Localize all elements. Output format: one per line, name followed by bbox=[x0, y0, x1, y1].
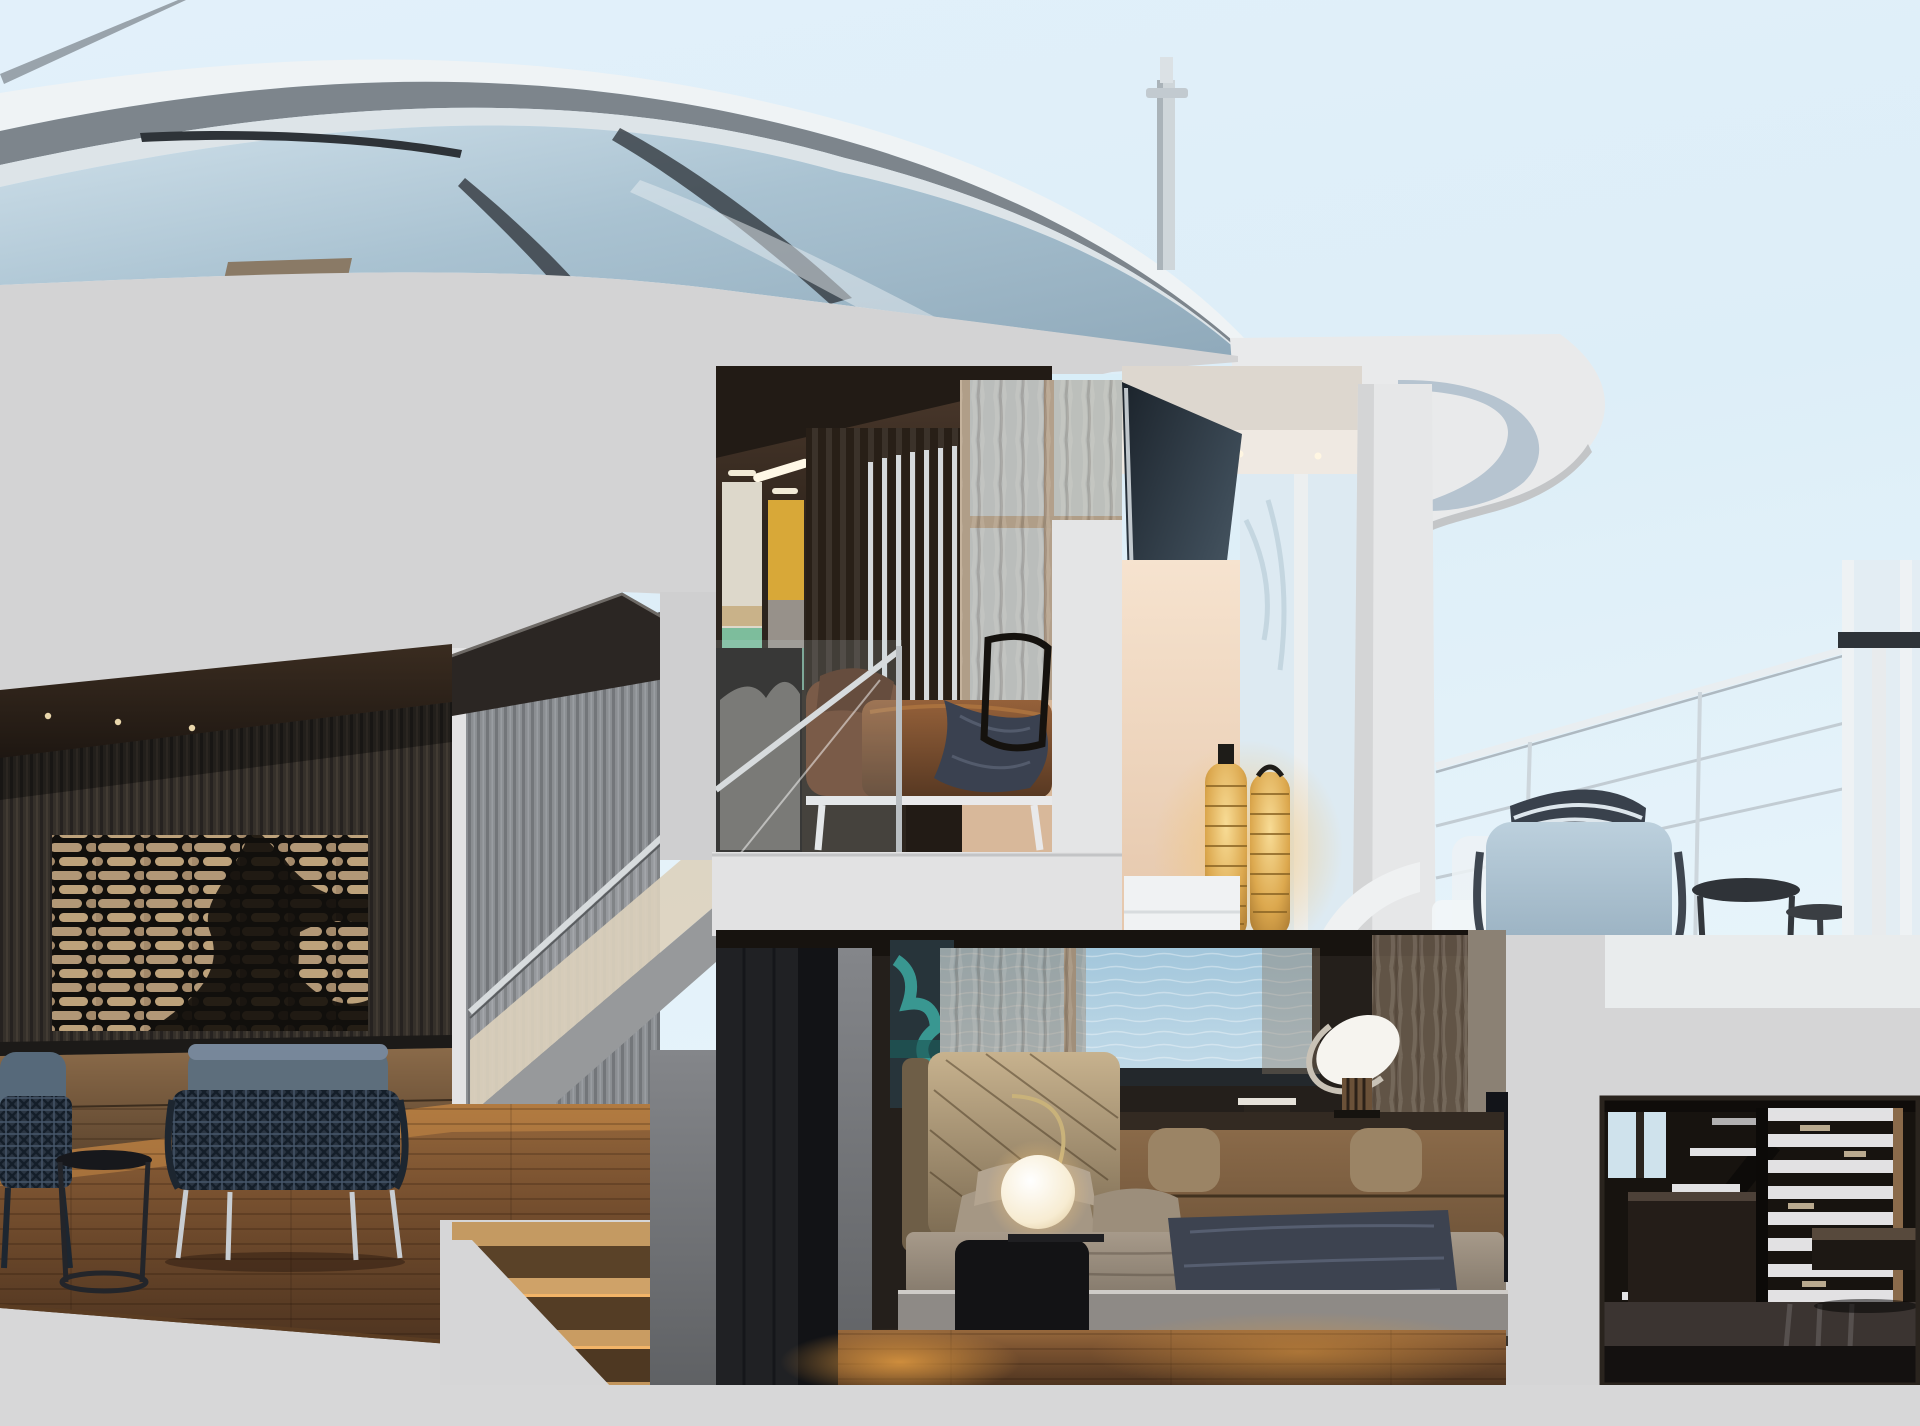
desk-books-1 bbox=[1238, 1098, 1296, 1105]
mast-crossbar bbox=[1146, 88, 1188, 98]
chair-right-cushion-highlight bbox=[188, 1044, 388, 1060]
art-green-tan-band bbox=[722, 606, 762, 626]
cut-column-left bbox=[660, 592, 716, 860]
lantern-2 bbox=[1246, 767, 1294, 942]
chair-right-shadow bbox=[165, 1252, 405, 1272]
far-table-top bbox=[1838, 632, 1920, 648]
chair-right-mesh bbox=[172, 1090, 400, 1190]
master-cabin bbox=[716, 930, 1510, 1396]
step-landing bbox=[452, 1222, 666, 1246]
bench-body bbox=[1812, 1240, 1920, 1270]
lantern-1-cap bbox=[1218, 744, 1234, 764]
render-canvas bbox=[0, 0, 1920, 1426]
side-table-top bbox=[56, 1150, 152, 1170]
floor-slab bbox=[712, 852, 1122, 936]
bench-shadow bbox=[1814, 1299, 1918, 1313]
lower-stair-room bbox=[1602, 1098, 1920, 1385]
cabin-left-wall bbox=[838, 948, 872, 1385]
wardrobe bbox=[716, 948, 798, 1385]
taccia-base bbox=[1334, 1110, 1380, 1118]
cabin-outer-wall bbox=[650, 1050, 716, 1386]
whale-tail-artwork bbox=[52, 835, 368, 1031]
desk-books-2 bbox=[1244, 1105, 1290, 1112]
cut-bottom-band bbox=[0, 1385, 1920, 1426]
floor-glow-bed bbox=[1090, 1312, 1510, 1392]
mast-pole-shade bbox=[1157, 80, 1163, 270]
cut-band-right bbox=[1503, 935, 1605, 1387]
nightstand-top bbox=[1008, 1234, 1104, 1242]
globe-lamp bbox=[1001, 1155, 1075, 1229]
bath-plinth bbox=[1602, 1346, 1918, 1385]
art-yellow-picture-light bbox=[772, 488, 798, 494]
upper-balustrade bbox=[716, 640, 902, 854]
stool-2 bbox=[1350, 1128, 1422, 1192]
mast-cap bbox=[1160, 57, 1173, 83]
vanity bbox=[1628, 1192, 1762, 1304]
deck-table-top bbox=[1692, 878, 1800, 902]
balustrade-post bbox=[896, 646, 902, 854]
yacht-render bbox=[0, 0, 1920, 1426]
stool-1 bbox=[1148, 1128, 1220, 1192]
bath-window-mullion bbox=[1636, 1112, 1644, 1178]
headboard-wing bbox=[902, 1058, 932, 1252]
bench-top bbox=[1812, 1228, 1920, 1240]
doorway bbox=[798, 948, 838, 1385]
art-yellow-band bbox=[768, 500, 804, 600]
vanity-top bbox=[1628, 1192, 1762, 1201]
art-green-picture-light bbox=[728, 470, 756, 476]
